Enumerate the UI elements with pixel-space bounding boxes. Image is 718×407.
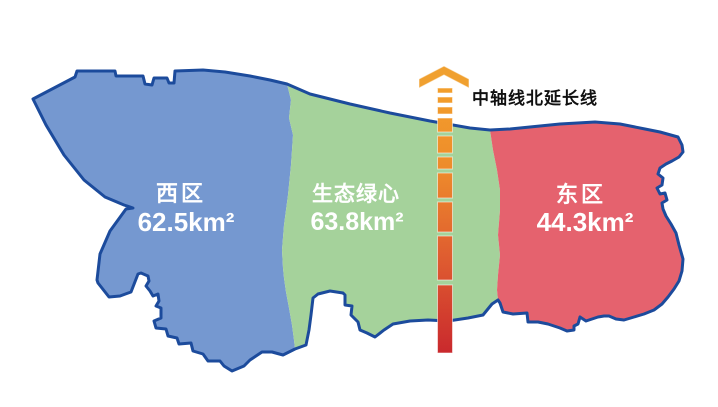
region-east-name: 东区 xyxy=(556,182,606,207)
axis-dash-segment xyxy=(438,136,453,153)
up-arrow-icon xyxy=(419,66,469,88)
region-green-heart-area: 63.8km² xyxy=(310,208,403,236)
axis-dash-segment xyxy=(438,157,453,169)
axis-dash-segment xyxy=(438,173,453,198)
axis-dash-segment xyxy=(438,88,453,93)
axis-dash-segment xyxy=(438,236,453,280)
map-canvas: 西区 62.5km² 生态绿心 63.8km² 东区 44.3km² 中轴线北延… xyxy=(0,0,718,407)
axis-dash-segment xyxy=(438,285,453,353)
axis-dash-segment xyxy=(438,107,453,114)
axis-dash-segment xyxy=(438,97,453,103)
region-east-area: 44.3km² xyxy=(537,207,634,237)
region-green-heart-name: 生态绿心 xyxy=(312,182,400,206)
axis-dash-segment xyxy=(438,118,453,132)
map-figure: 西区 62.5km² 生态绿心 63.8km² 东区 44.3km² 中轴线北延… xyxy=(0,0,718,407)
region-west-area: 62.5km² xyxy=(138,207,235,237)
axis-dash-segment xyxy=(438,202,453,232)
region-west-name: 西区 xyxy=(156,181,206,206)
axis-label: 中轴线北延长线 xyxy=(472,88,598,108)
